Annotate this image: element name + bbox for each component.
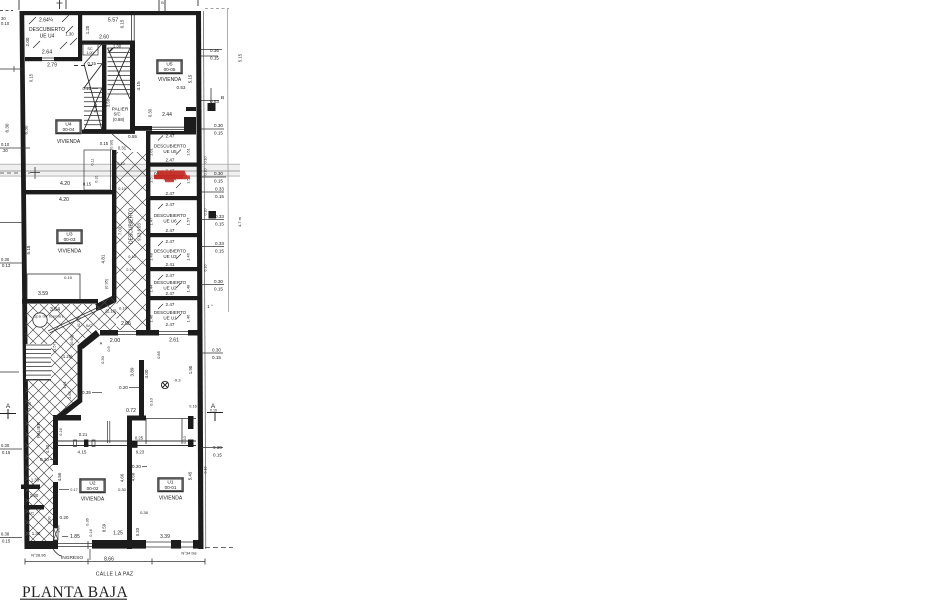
svg-text:00-01: 00-01 xyxy=(165,485,177,490)
svg-text:INGRESO: INGRESO xyxy=(61,555,83,561)
svg-text:0.10: 0.10 xyxy=(183,436,187,443)
svg-text:0.31: 0.31 xyxy=(95,175,99,182)
svg-text:0.10: 0.10 xyxy=(126,268,133,272)
svg-text:0.55: 0.55 xyxy=(128,134,137,139)
svg-text:S/C: S/C xyxy=(86,324,93,328)
svg-text:0.30: 0.30 xyxy=(118,487,127,492)
svg-text:2.79: 2.79 xyxy=(47,63,57,69)
svg-text:0.15: 0.15 xyxy=(214,179,223,184)
svg-text:DESCUBIERTO: DESCUBIERTO xyxy=(129,208,135,244)
svg-text:(1.57): (1.57) xyxy=(52,341,57,352)
svg-text:0.30: 0.30 xyxy=(1,443,10,448)
svg-text:6.30: 6.30 xyxy=(24,125,29,134)
svg-text:1.48: 1.48 xyxy=(149,252,154,261)
svg-text:UE U6: UE U6 xyxy=(163,218,177,223)
svg-text:PLANTA BAJA: PLANTA BAJA xyxy=(22,584,128,600)
svg-text:0.15: 0.15 xyxy=(215,249,224,254)
svg-text:0.33: 0.33 xyxy=(215,214,224,219)
svg-text:CALLE LA PAZ: CALLE LA PAZ xyxy=(96,572,133,578)
svg-text:4.15: 4.15 xyxy=(136,81,142,91)
svg-text:S/C: S/C xyxy=(28,511,35,516)
svg-text:1.20: 1.20 xyxy=(85,25,90,34)
svg-text:DESCUBIERTO: DESCUBIERTO xyxy=(154,144,187,149)
svg-text:0.21: 0.21 xyxy=(79,432,88,437)
svg-text:4.7 m: 4.7 m xyxy=(237,216,242,227)
svg-text:8.66: 8.66 xyxy=(104,557,114,563)
svg-text:00-03: 00-03 xyxy=(64,237,76,242)
svg-text:4.40: 4.40 xyxy=(45,444,50,453)
svg-text:B: B xyxy=(221,95,224,101)
svg-text:0.30: 0.30 xyxy=(214,171,223,176)
svg-text:9.85: 9.85 xyxy=(27,401,32,410)
svg-text:6.30: 6.30 xyxy=(5,123,10,132)
svg-text:1.25: 1.25 xyxy=(113,531,123,537)
svg-text:(0.88): (0.88) xyxy=(113,117,125,122)
svg-text:0.15: 0.15 xyxy=(100,141,109,146)
svg-text:0.16: 0.16 xyxy=(59,428,63,435)
svg-text:-9.3: -9.3 xyxy=(174,378,182,383)
svg-text:0.15: 0.15 xyxy=(215,194,224,199)
svg-text:1.48: 1.48 xyxy=(186,284,191,293)
svg-text:(0.95): (0.95) xyxy=(104,278,109,289)
svg-text:5.40: 5.40 xyxy=(93,103,98,112)
svg-text:0.10: 0.10 xyxy=(204,209,208,216)
svg-text:4.20: 4.20 xyxy=(59,197,69,203)
svg-text:0.33: 0.33 xyxy=(215,187,224,192)
svg-text:00-05: 00-05 xyxy=(164,67,176,72)
svg-text:0.30: 0.30 xyxy=(213,445,222,450)
svg-text:9.23: 9.23 xyxy=(136,450,145,455)
svg-text:2.64: 2.64 xyxy=(42,50,53,56)
svg-text:.30: .30 xyxy=(2,148,8,153)
svg-text:0.13: 0.13 xyxy=(2,263,11,268)
svg-text:6.10: 6.10 xyxy=(119,306,128,311)
svg-text:2.47: 2.47 xyxy=(166,202,175,207)
svg-text:0.20: 0.20 xyxy=(40,457,49,462)
svg-text:0.30: 0.30 xyxy=(48,517,52,524)
svg-text:2.44: 2.44 xyxy=(162,112,172,118)
svg-text:UE U5: UE U5 xyxy=(163,149,177,154)
svg-text:3.89: 3.89 xyxy=(130,367,135,376)
svg-text:1 °: 1 ° xyxy=(207,304,213,309)
svg-text:VIVIENDA: VIVIENDA xyxy=(57,139,81,145)
svg-text:8.59: 8.59 xyxy=(102,523,107,532)
svg-text:A: A xyxy=(211,403,216,410)
svg-text:2.41: 2.41 xyxy=(166,262,175,267)
svg-text:VIVIENDA: VIVIENDA xyxy=(159,496,183,502)
svg-text:1.30: 1.30 xyxy=(30,493,39,498)
svg-text:0.15: 0.15 xyxy=(214,287,223,292)
svg-text:DESCUBIERTO: DESCUBIERTO xyxy=(154,249,187,254)
svg-text:0.20: 0.20 xyxy=(132,464,141,469)
svg-text:1.46: 1.46 xyxy=(149,314,154,323)
svg-text:UE U3: UE U3 xyxy=(163,254,177,259)
svg-text:0.10: 0.10 xyxy=(117,162,124,166)
svg-text:4.15: 4.15 xyxy=(78,450,87,455)
svg-text:0.10: 0.10 xyxy=(204,467,208,474)
svg-text:(0.77): (0.77) xyxy=(76,316,81,327)
svg-text:4.66: 4.66 xyxy=(120,473,125,482)
svg-text:2.05: 2.05 xyxy=(121,321,131,327)
svg-text:DESCUBIERTO: DESCUBIERTO xyxy=(154,213,187,218)
svg-text:2.47: 2.47 xyxy=(166,239,175,244)
svg-text:2.60: 2.60 xyxy=(99,35,109,41)
svg-text:0.10: 0.10 xyxy=(128,255,135,259)
svg-text:2.65: 2.65 xyxy=(67,390,72,399)
svg-text:0.10: 0.10 xyxy=(118,187,125,191)
svg-text:0.15: 0.15 xyxy=(2,450,11,455)
svg-text:0.36: 0.36 xyxy=(86,518,90,525)
svg-text:0.10: 0.10 xyxy=(204,265,208,272)
svg-text:2.47: 2.47 xyxy=(166,157,175,162)
svg-text:2.47: 2.47 xyxy=(166,291,175,296)
svg-text:0.15: 0.15 xyxy=(82,86,91,91)
svg-text:5.15: 5.15 xyxy=(188,74,193,83)
svg-text:2.47: 2.47 xyxy=(166,191,175,196)
svg-text:0.72: 0.72 xyxy=(126,408,136,414)
svg-text:0.15: 0.15 xyxy=(120,19,125,28)
svg-text:0.20: 0.20 xyxy=(119,385,128,390)
svg-text:0.30: 0.30 xyxy=(214,123,223,128)
svg-text:2.47: 2.47 xyxy=(166,322,175,327)
svg-text:0.15: 0.15 xyxy=(83,182,92,187)
svg-text:0.9: 0.9 xyxy=(107,346,111,351)
svg-text:2.47: 2.47 xyxy=(166,273,175,278)
svg-text:3.39: 3.39 xyxy=(160,534,170,540)
svg-text:(1.25): (1.25) xyxy=(62,354,74,359)
svg-text:0.11: 0.11 xyxy=(91,158,95,165)
svg-text:0.10: 0.10 xyxy=(204,169,208,176)
svg-text:UE U1: UE U1 xyxy=(163,315,177,320)
svg-text:5.18: 5.18 xyxy=(26,245,31,254)
svg-text:4.56: 4.56 xyxy=(57,472,62,481)
svg-text:0.15: 0.15 xyxy=(212,355,221,360)
svg-text:4.20: 4.20 xyxy=(60,181,70,187)
svg-text:0.36: 0.36 xyxy=(210,48,219,53)
svg-text:00-02: 00-02 xyxy=(87,486,99,491)
svg-text:5.45: 5.45 xyxy=(188,471,193,480)
svg-text:1.44: 1.44 xyxy=(149,284,154,293)
svg-text:2.47: 2.47 xyxy=(166,302,175,307)
svg-text:UE U4: UE U4 xyxy=(40,34,55,40)
svg-text:3.58: 3.58 xyxy=(106,98,111,107)
svg-text:1.61: 1.61 xyxy=(186,147,191,156)
svg-text:0.30: 0.30 xyxy=(148,108,153,117)
svg-text:00-04: 00-04 xyxy=(63,127,75,132)
svg-text:0.53: 0.53 xyxy=(177,85,186,90)
svg-text:1.90: 1.90 xyxy=(188,365,193,374)
svg-text:PALIER: PALIER xyxy=(36,421,41,438)
svg-text:2.47: 2.47 xyxy=(166,228,175,233)
svg-text:1.57: 1.57 xyxy=(186,217,191,226)
svg-text:0.16: 0.16 xyxy=(189,405,196,409)
svg-text:1.30: 1.30 xyxy=(65,32,74,37)
svg-text:1.61: 1.61 xyxy=(62,380,67,389)
svg-text:1.5: 1.5 xyxy=(149,176,154,182)
svg-text:0.15: 0.15 xyxy=(210,56,219,61)
svg-text:4.00: 4.00 xyxy=(144,369,149,378)
svg-text:VIVIENDA: VIVIENDA xyxy=(81,497,105,503)
svg-text:0.15: 0.15 xyxy=(2,539,11,544)
svg-text:0.38: 0.38 xyxy=(140,510,149,515)
svg-text:0.10: 0.10 xyxy=(1,21,10,26)
svg-text:0.30: 0.30 xyxy=(100,355,105,364)
svg-text:0.15: 0.15 xyxy=(87,61,96,66)
svg-text:2.61: 2.61 xyxy=(169,338,179,344)
svg-text:4.68: 4.68 xyxy=(131,472,136,481)
svg-text:VIVIENDA: VIVIENDA xyxy=(58,249,82,255)
svg-text:5.15: 5.15 xyxy=(238,53,243,62)
svg-text:(2.16): (2.16) xyxy=(106,309,118,314)
svg-text:3.64: 3.64 xyxy=(50,307,60,313)
svg-text:0.10: 0.10 xyxy=(25,470,30,479)
svg-text:4.81: 4.81 xyxy=(101,254,106,263)
svg-text:1.46: 1.46 xyxy=(186,252,191,261)
svg-text:1.30: 1.30 xyxy=(31,478,40,483)
svg-text:0.20: 0.20 xyxy=(60,515,69,520)
svg-text:1.46: 1.46 xyxy=(186,314,191,323)
svg-text:7.00: 7.00 xyxy=(118,226,123,235)
svg-text:3.85: 3.85 xyxy=(77,375,82,384)
svg-text:0.85: 0.85 xyxy=(156,350,161,359)
svg-text:1.61: 1.61 xyxy=(149,147,154,156)
svg-text:0.10: 0.10 xyxy=(204,157,208,164)
svg-text:2.00: 2.00 xyxy=(110,338,121,344)
svg-text:0.25: 0.25 xyxy=(135,436,144,441)
svg-text:0.15: 0.15 xyxy=(215,222,224,227)
svg-text:VIVIENDA: VIVIENDA xyxy=(158,77,182,83)
svg-text:9.63 6.03: 9.63 6.03 xyxy=(137,223,142,241)
svg-text:2.64¼: 2.64¼ xyxy=(39,18,54,24)
svg-text:(0.65): (0.65) xyxy=(70,334,74,345)
svg-text:N°28.96: N°28.96 xyxy=(31,553,46,558)
svg-text:N°34 bis: N°34 bis xyxy=(181,551,196,556)
svg-text:DESCUBIERTO: DESCUBIERTO xyxy=(29,27,65,33)
svg-text:0.15: 0.15 xyxy=(213,453,222,458)
svg-text:0.16: 0.16 xyxy=(89,529,93,536)
svg-text:0.30: 0.30 xyxy=(1,257,10,262)
svg-text:A: A xyxy=(6,403,11,410)
svg-text:(0.93): (0.93) xyxy=(109,139,114,150)
svg-text:6.38: 6.38 xyxy=(1,532,10,537)
svg-text:1.30: 1.30 xyxy=(32,531,41,536)
svg-text:0.35: 0.35 xyxy=(82,390,91,395)
svg-text:S/C: S/C xyxy=(114,112,121,117)
svg-text:0.15: 0.15 xyxy=(29,73,34,82)
svg-text:0.17: 0.17 xyxy=(70,488,77,492)
svg-text:2.00: 2.00 xyxy=(25,37,30,46)
svg-text:1.85: 1.85 xyxy=(70,534,80,540)
svg-text:1.47: 1.47 xyxy=(149,217,154,226)
svg-text:0.10: 0.10 xyxy=(1,142,10,147)
svg-text:5.57: 5.57 xyxy=(108,18,119,24)
svg-text:0.15: 0.15 xyxy=(64,275,73,280)
svg-text:3.59: 3.59 xyxy=(38,291,48,297)
svg-text:0.30: 0.30 xyxy=(212,348,221,353)
svg-text:A: A xyxy=(100,341,103,346)
svg-text:0.33: 0.33 xyxy=(135,527,140,536)
svg-text:B: B xyxy=(161,1,164,5)
svg-text:0.33: 0.33 xyxy=(215,241,224,246)
svg-text:spa de fuentes: spa de fuentes xyxy=(34,315,64,319)
svg-text:0.15: 0.15 xyxy=(214,131,223,136)
svg-text:0.31: 0.31 xyxy=(118,146,127,151)
svg-text:0.10: 0.10 xyxy=(149,397,154,406)
svg-text:0.30: 0.30 xyxy=(214,279,223,284)
svg-text:DESCUBIERTO: DESCUBIERTO xyxy=(154,280,187,285)
svg-text:UE U2: UE U2 xyxy=(163,285,177,290)
svg-text:DESCUBIERTO: DESCUBIERTO xyxy=(154,310,187,315)
